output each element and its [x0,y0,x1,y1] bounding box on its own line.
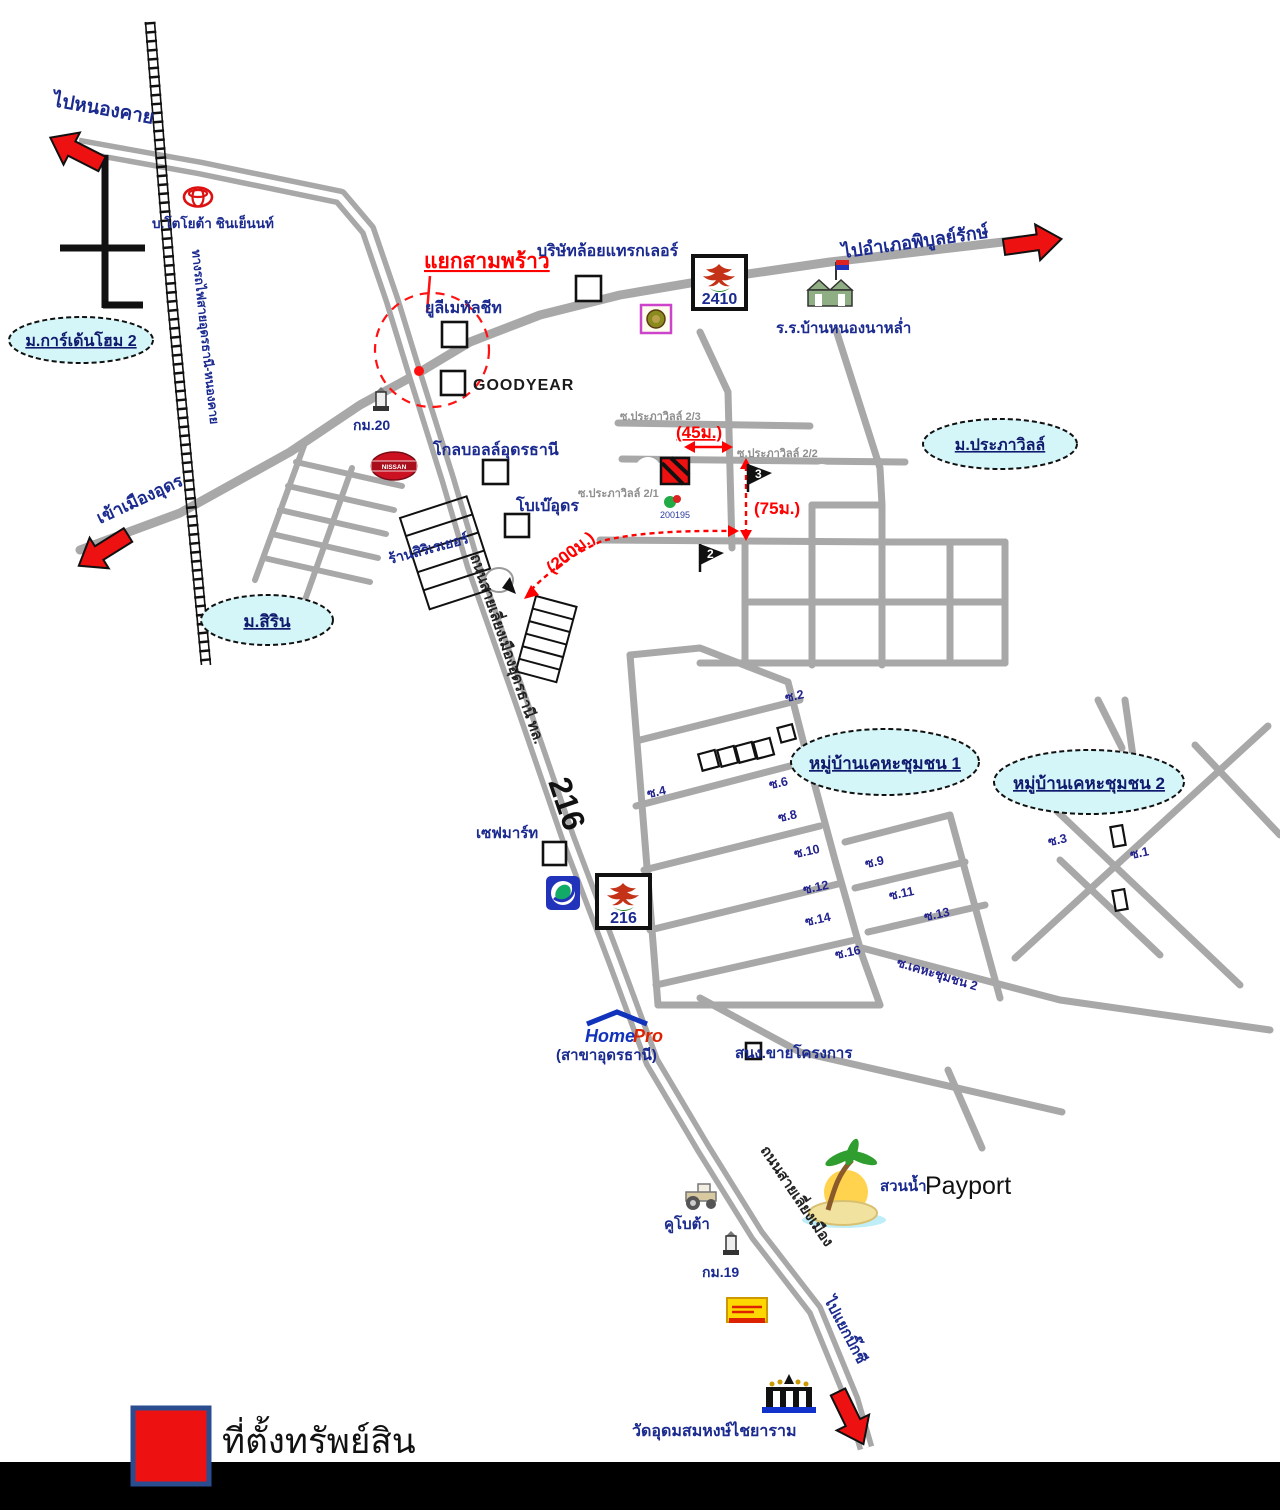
distance-45m-label: (45ม.) [676,423,722,442]
svg-text:ซ.9: ซ.9 [864,853,885,871]
label-trailer: บริษัทล้อยแทรกเลอร์ [537,241,679,260]
svg-text:NISSAN: NISSAN [382,464,407,471]
label-kubota: คูโบต้า [664,1214,710,1234]
svg-text:200195: 200195 [660,510,690,520]
svg-text:ม.สิริน: ม.สิริน [243,612,290,631]
fuel-station-logo-icon [727,1298,767,1323]
junction-label: แยกสามพร้าว [424,249,550,273]
km19-marker-icon [723,1231,739,1255]
shop-logo-icon [641,305,671,333]
svg-text:ซ.11: ซ.11 [888,884,916,903]
svg-text:3: 3 [755,467,762,481]
road-bulb-2 [808,464,836,492]
map-canvas: แยกสามพร้าว (45ม.) (75ม.) (200ม.) 3 2 [0,0,1280,1510]
distance-45m-arrow [684,441,733,453]
label-homepro-branch: (สาขาอุดรธานี) [556,1047,657,1065]
homepro-logo: Home Pro [585,1012,663,1046]
road-bulb-1 [635,457,661,483]
label-soi-prapha-low: ซ.ประภาวิลล์ 2/1 [578,487,659,500]
label-goodyear: GOODYEAR [473,377,574,394]
property-marker [661,458,689,484]
route-shield-216: 216 [597,875,650,928]
road-estate1 [630,648,1270,1148]
road-network [80,240,1280,1148]
svg-text:ม.ประภาวิลล์: ม.ประภาวิลล์ [955,435,1045,454]
label-siri-shop: ร้านสิริเรเยอร์ [387,530,471,567]
label-bobae: โบเบ๊อุดร [515,495,579,516]
label-waterpark-en: Payport [925,1172,1011,1200]
nissan-logo-icon: NISSAN [371,452,417,480]
label-km20: กม.20 [353,417,390,433]
label-to-phibun: ไปอำเภอพิบูลย์รักษ์ [839,221,991,265]
svg-text:ซ.14: ซ.14 [804,910,832,929]
svg-text:ซ.12: ซ.12 [802,878,830,897]
svg-text:หมู่บ้านเคหะชุมชน 2: หมู่บ้านเคหะชุมชน 2 [1013,774,1165,795]
survey-marker: 200195 [660,495,690,520]
label-savemart: เซฟมาร์ท [476,824,538,842]
label-waterpark-th: สวนน้ำ [880,1174,927,1195]
svg-text:ซ.8: ซ.8 [777,807,798,825]
hatched-block-b [516,596,577,682]
gas-station-logo-icon [546,876,580,910]
label-soi-prapha-top: ซ.ประภาวิลล์ 2/3 [620,410,701,423]
svg-text:Home: Home [585,1026,635,1046]
savemart-box [543,842,566,865]
metalsheet-box [442,322,467,347]
flag-3: 3 [748,464,772,492]
flag-2: 2 [700,544,724,572]
svg-text:ซ.1: ซ.1 [1129,844,1150,862]
toyota-logo-icon [184,188,212,207]
label-km19: กม.19 [702,1264,739,1280]
label-railway: ทางรถไฟสายอุดรธานี-หนองคาย [188,249,222,425]
label-temple: วัดอุดมสมหงษ์ไชยาราม [632,1421,797,1441]
svg-text:216: 216 [610,910,637,927]
svg-text:ซ.13: ซ.13 [923,905,951,924]
svg-text:ซ.10: ซ.10 [793,842,821,861]
distance-75m-label: (75ม.) [754,499,800,518]
road-gardenhome [60,155,145,308]
svg-text:ซ.6: ซ.6 [768,774,789,792]
bobae-box [505,514,529,537]
legend-property-label: ที่ตั้งทรัพย์สิน [222,1415,416,1461]
goodyear-box [441,371,465,395]
arrow-to-phibun [1001,221,1063,265]
route-shield-2410: 2410 [693,256,746,309]
label-to-nongkhai: ไปหนองคาย [49,88,156,129]
label-toyota: บ.โตโยต้า ชินเย็นนท์ [152,214,274,231]
label-metalsheet: ยูลีเมทัลชีท [425,298,502,319]
svg-text:2: 2 [707,547,714,561]
svg-text:2410: 2410 [702,291,738,308]
label-global: โกลบอลล์อุดรธานี [432,439,559,460]
svg-text:ม.การ์เด้นโฮม 2: ม.การ์เด้นโฮม 2 [25,330,136,350]
svg-text:ซ.3: ซ.3 [1047,831,1068,849]
legend-property-swatch [133,1408,209,1484]
distance-200m-label: (200ม.) [543,528,599,577]
estate1-houses [698,724,796,771]
label-sales-office: สนง.ขายโครงการ [735,1043,853,1062]
label-soi-prapha-mid: ซ.ประภาวิลล์ 2/2 [737,447,818,460]
label-bypass-216: 216 [541,773,592,835]
trailer-box [576,276,601,301]
kubota-tractor-icon [686,1184,716,1210]
label-school: ร.ร.บ้านหนองนาหล่ำ [776,317,911,337]
temple-icon [762,1374,816,1413]
global-box [483,460,508,484]
road-grid-diag [836,330,882,505]
svg-text:Pro: Pro [633,1026,663,1046]
map-page: แยกสามพร้าว (45ม.) (75ม.) (200ม.) 3 2 [0,0,1280,1510]
svg-text:หมู่บ้านเคหะชุมชน 1: หมู่บ้านเคหะชุมชน 1 [809,754,961,775]
